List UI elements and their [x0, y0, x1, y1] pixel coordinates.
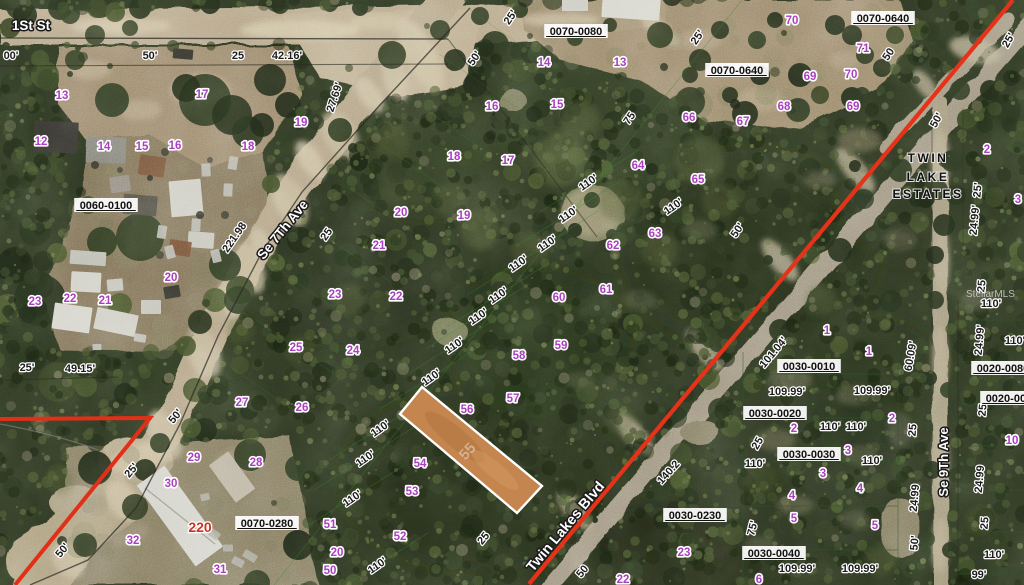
svg-text:69: 69: [847, 101, 860, 113]
svg-text:3: 3: [820, 468, 826, 480]
svg-text:18: 18: [242, 141, 255, 153]
svg-text:5: 5: [791, 513, 798, 525]
svg-text:12: 12: [35, 136, 48, 148]
svg-text:4: 4: [857, 483, 864, 495]
svg-text:25: 25: [978, 516, 991, 529]
svg-text:21: 21: [99, 295, 112, 307]
svg-text:70: 70: [786, 15, 799, 27]
svg-text:50: 50: [324, 565, 337, 577]
svg-text:22: 22: [617, 574, 630, 585]
svg-text:3: 3: [1015, 194, 1021, 206]
svg-text:15: 15: [551, 99, 564, 111]
svg-text:20: 20: [165, 272, 178, 284]
svg-text:58: 58: [513, 350, 526, 362]
svg-text:24: 24: [347, 345, 360, 357]
svg-text:30: 30: [165, 478, 178, 490]
svg-text:13: 13: [56, 90, 69, 102]
svg-text:110': 110': [1005, 335, 1024, 347]
svg-text:5: 5: [872, 520, 879, 532]
svg-text:66: 66: [683, 112, 696, 124]
svg-text:110': 110': [820, 421, 841, 433]
svg-text:14: 14: [98, 141, 111, 153]
svg-text:51: 51: [324, 519, 337, 531]
svg-text:17: 17: [502, 155, 515, 167]
svg-text:17: 17: [196, 89, 209, 101]
svg-text:15: 15: [136, 141, 149, 153]
svg-text:19: 19: [295, 117, 308, 129]
svg-text:2: 2: [889, 413, 895, 425]
svg-text:23: 23: [678, 547, 691, 559]
svg-text:54: 54: [414, 458, 427, 470]
svg-text:22: 22: [390, 291, 403, 303]
svg-text:23: 23: [29, 296, 42, 308]
svg-text:26: 26: [296, 402, 309, 414]
svg-text:6: 6: [756, 574, 762, 585]
svg-text:60: 60: [553, 292, 566, 304]
svg-text:24.99: 24.99: [908, 484, 922, 512]
svg-text:TWIN: TWIN: [908, 151, 949, 165]
svg-text:109.99': 109.99': [842, 563, 879, 575]
svg-text:00': 00': [4, 50, 19, 62]
svg-text:3: 3: [845, 445, 851, 457]
svg-text:25: 25: [976, 403, 989, 416]
svg-text:1: 1: [824, 325, 831, 337]
svg-text:70: 70: [845, 69, 858, 81]
svg-text:25: 25: [906, 423, 919, 436]
svg-text:50': 50': [143, 50, 158, 62]
svg-text:18: 18: [448, 151, 461, 163]
svg-text:28: 28: [250, 457, 263, 469]
svg-text:25': 25': [20, 362, 35, 374]
svg-text:109.99': 109.99': [854, 385, 891, 397]
svg-text:22: 22: [64, 293, 77, 305]
svg-text:99': 99': [972, 569, 987, 581]
svg-text:LAKE: LAKE: [907, 170, 950, 184]
svg-text:16: 16: [169, 140, 182, 152]
svg-text:110': 110': [745, 458, 766, 470]
svg-text:49.15': 49.15': [65, 363, 96, 375]
svg-text:24.99: 24.99: [973, 465, 987, 493]
svg-text:29: 29: [188, 452, 201, 464]
svg-text:63: 63: [649, 228, 662, 240]
svg-text:16: 16: [486, 101, 499, 113]
svg-text:20: 20: [395, 207, 408, 219]
svg-text:25': 25': [971, 182, 984, 198]
svg-text:25: 25: [232, 50, 244, 62]
svg-text:10: 10: [1006, 435, 1019, 447]
svg-text:53: 53: [406, 486, 419, 498]
svg-text:64: 64: [632, 160, 645, 172]
svg-text:32: 32: [127, 535, 140, 547]
svg-text:13: 13: [614, 57, 627, 69]
svg-text:14: 14: [538, 57, 551, 69]
svg-text:StellarMLS: StellarMLS: [966, 289, 1015, 300]
svg-text:2: 2: [791, 423, 797, 435]
svg-text:56: 56: [461, 404, 474, 416]
svg-text:25: 25: [290, 342, 303, 354]
svg-text:68: 68: [778, 101, 791, 113]
svg-text:65: 65: [692, 174, 705, 186]
svg-text:69: 69: [804, 71, 817, 83]
svg-text:42.16': 42.16': [272, 50, 303, 62]
svg-text:50': 50': [908, 535, 921, 551]
svg-text:23: 23: [329, 289, 342, 301]
svg-text:110': 110': [846, 421, 867, 433]
svg-text:110': 110': [862, 455, 883, 467]
svg-text:1St St: 1St St: [12, 18, 51, 33]
svg-text:4: 4: [789, 490, 796, 502]
svg-text:1: 1: [866, 346, 873, 358]
svg-text:Se 9Th Ave: Se 9Th Ave: [936, 427, 951, 496]
svg-text:59: 59: [555, 340, 568, 352]
svg-text:19: 19: [458, 210, 471, 222]
svg-text:52: 52: [394, 531, 407, 543]
svg-text:109.99': 109.99': [779, 563, 816, 575]
svg-text:109.99': 109.99': [769, 386, 806, 398]
svg-text:ESTATES: ESTATES: [892, 187, 963, 201]
svg-text:2: 2: [984, 144, 990, 156]
svg-text:62: 62: [607, 240, 620, 252]
svg-text:57: 57: [507, 393, 520, 405]
svg-text:31: 31: [214, 564, 227, 576]
svg-text:110': 110': [984, 549, 1005, 561]
svg-text:20: 20: [331, 547, 344, 559]
svg-text:220: 220: [188, 519, 212, 535]
svg-text:27: 27: [236, 397, 249, 409]
svg-text:67: 67: [737, 116, 750, 128]
svg-text:71: 71: [857, 43, 870, 55]
svg-text:61: 61: [600, 284, 613, 296]
svg-text:21: 21: [373, 240, 386, 252]
